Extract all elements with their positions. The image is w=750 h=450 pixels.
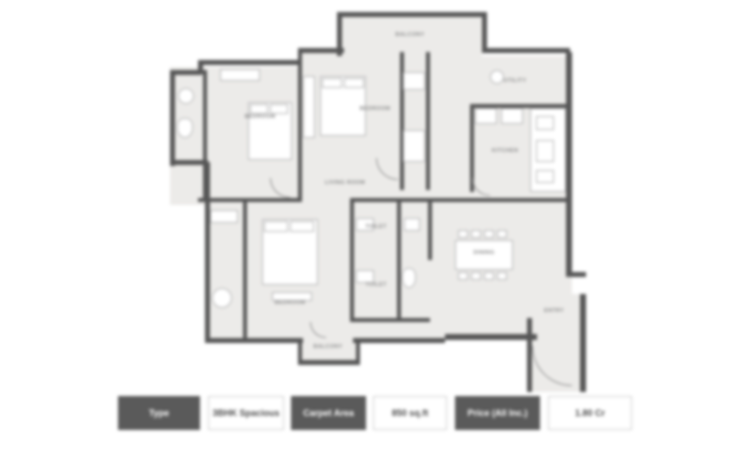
wall — [298, 360, 360, 365]
room-label-entry: ENTRY — [532, 308, 576, 314]
wall — [205, 338, 303, 343]
wall — [580, 294, 586, 394]
washbasin-icon — [212, 288, 232, 308]
room-label-toilet-2: TOILET — [356, 282, 396, 288]
room-label-bedroom-3: BEDROOM — [260, 300, 320, 306]
chair-icon — [497, 272, 507, 280]
chair-icon — [484, 230, 494, 238]
wall — [428, 202, 432, 260]
pillow-icon — [264, 221, 288, 232]
room-label-bedroom-1: BEDROOM — [225, 114, 295, 120]
app: BALCONY UTILITY BEDROOM BEDROOM KITCHEN … — [0, 0, 750, 450]
info-cell-carpet-label: Carpet Area — [291, 396, 366, 430]
wall — [353, 338, 445, 343]
chair-icon — [484, 272, 494, 280]
info-cell-carpet-value: 850 sq.ft — [373, 396, 447, 430]
info-cell-type-label: Type — [118, 396, 200, 430]
pillow-icon — [270, 104, 288, 114]
fixture-icon — [404, 218, 420, 231]
wall — [566, 52, 572, 204]
chair-icon — [497, 230, 507, 238]
info-cell-price-label: Price (All Inc.) — [455, 396, 540, 430]
wall — [445, 334, 537, 340]
pillow-icon — [250, 104, 268, 114]
fixture-icon — [501, 108, 523, 124]
wall — [350, 198, 566, 202]
wall — [350, 202, 354, 322]
toilet-icon — [177, 118, 193, 138]
fixture-icon — [536, 170, 554, 183]
wall — [350, 318, 430, 322]
room-label-balcony-bottom: BALCONY — [300, 344, 356, 350]
pillow-icon — [290, 221, 314, 232]
wall — [170, 70, 175, 166]
shaft-icon — [403, 130, 425, 162]
wall — [566, 204, 572, 272]
info-cell-type-value: 3BHK Spacious — [208, 396, 284, 430]
room-label-toilet-1: TOILET — [356, 224, 396, 230]
wardrobe-icon — [303, 76, 315, 138]
chair-icon — [458, 230, 468, 238]
pillow-icon — [322, 78, 342, 88]
hob-icon — [536, 140, 554, 162]
room-label-balcony-top: BALCONY — [375, 32, 445, 38]
floor-plan: BALCONY UTILITY BEDROOM BEDROOM KITCHEN … — [170, 12, 590, 390]
wall — [198, 60, 302, 65]
fixture-icon — [475, 108, 497, 124]
shelf-icon — [220, 69, 260, 81]
room-label-bedroom-2: BEDROOM — [345, 106, 405, 112]
info-cell-price-value: 1.80 Cr — [548, 396, 632, 430]
wall — [198, 198, 302, 202]
wall — [482, 12, 487, 52]
washbasin-icon — [178, 88, 194, 104]
wall — [527, 318, 532, 394]
room-label-living-room: LIVING ROOM — [305, 180, 385, 186]
wall — [205, 162, 210, 343]
chair-icon — [458, 272, 468, 280]
wall — [298, 48, 344, 53]
wall — [566, 272, 586, 277]
toilet-icon — [402, 268, 416, 288]
chair-icon — [471, 230, 481, 238]
wall — [482, 48, 570, 53]
pillow-icon — [344, 78, 364, 88]
wall — [243, 202, 247, 342]
room-label-utility: UTILITY — [485, 78, 545, 84]
counter-icon — [210, 210, 238, 223]
wall — [337, 12, 487, 17]
sink-icon — [536, 116, 554, 130]
chair-icon — [471, 272, 481, 280]
room-label-dining: DINING — [458, 250, 510, 256]
shaft-icon — [403, 72, 425, 90]
wall — [298, 52, 302, 202]
wall — [397, 202, 401, 318]
wall — [426, 52, 430, 190]
room-label-kitchen: KITCHEN — [475, 148, 535, 154]
info-bar: Type 3BHK Spacious Carpet Area 850 sq.ft… — [112, 392, 638, 436]
